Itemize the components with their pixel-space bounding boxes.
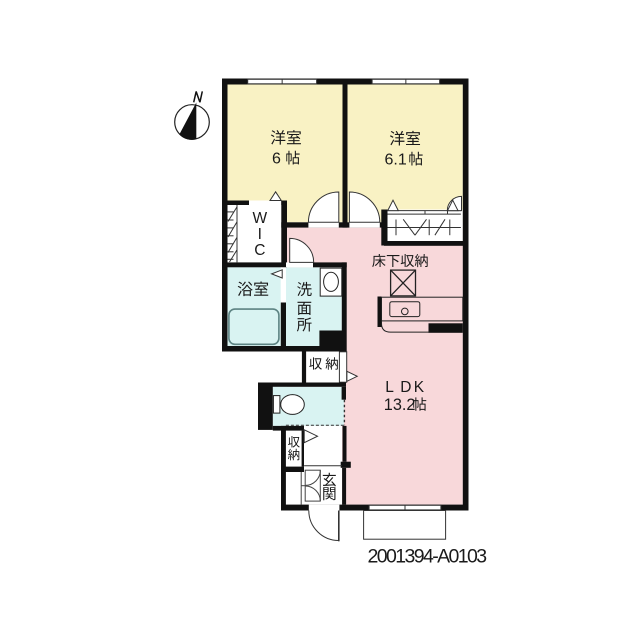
svg-text:I: I — [258, 226, 262, 243]
svg-text:D: D — [400, 379, 411, 396]
svg-text:6.1: 6.1 — [385, 152, 407, 169]
svg-text:C: C — [254, 242, 265, 259]
svg-text:2001394-A0103: 2001394-A0103 — [368, 546, 487, 568]
svg-text:6: 6 — [272, 151, 281, 168]
svg-text:13.2: 13.2 — [384, 396, 416, 414]
svg-text:L: L — [385, 379, 394, 396]
svg-text:W: W — [252, 210, 267, 227]
svg-text:K: K — [414, 379, 425, 396]
